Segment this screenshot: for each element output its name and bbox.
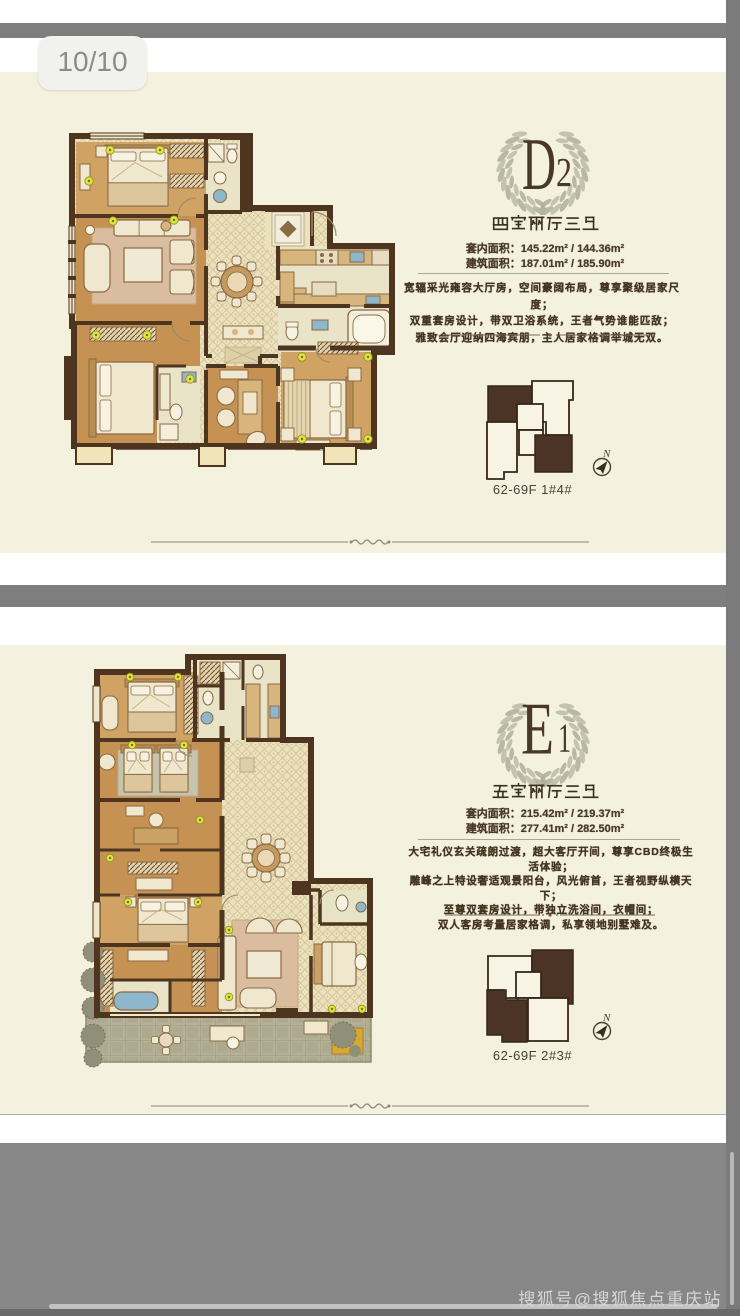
svg-text:N: N (602, 1012, 611, 1024)
svg-text:D: D (522, 124, 556, 206)
svg-text:1: 1 (558, 715, 571, 761)
svg-text:E: E (521, 693, 554, 771)
svg-text:N: N (602, 448, 611, 460)
svg-text:2: 2 (556, 149, 572, 195)
